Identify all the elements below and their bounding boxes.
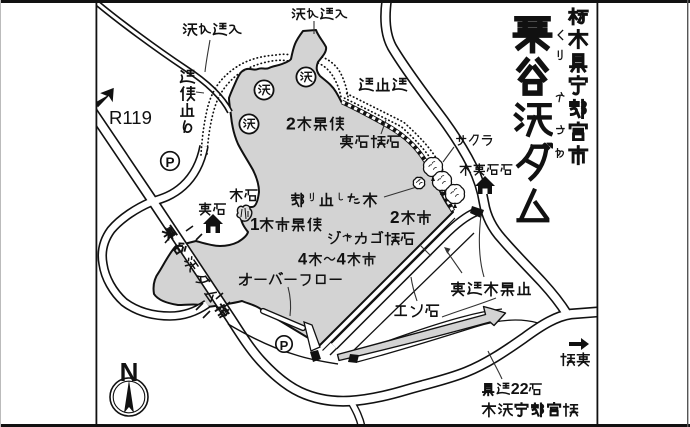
svg-text:4: 4 bbox=[337, 250, 347, 268]
svg-text:R119: R119 bbox=[109, 107, 152, 128]
svg-text:N: N bbox=[120, 357, 139, 387]
svg-text:2: 2 bbox=[511, 380, 520, 398]
svg-text:P: P bbox=[280, 338, 289, 353]
svg-text:2: 2 bbox=[520, 380, 529, 398]
svg-text:2: 2 bbox=[286, 113, 296, 133]
svg-text:P: P bbox=[165, 155, 174, 170]
svg-text:2: 2 bbox=[390, 208, 400, 227]
svg-text:4: 4 bbox=[298, 250, 308, 268]
svg-text:1: 1 bbox=[250, 215, 260, 234]
